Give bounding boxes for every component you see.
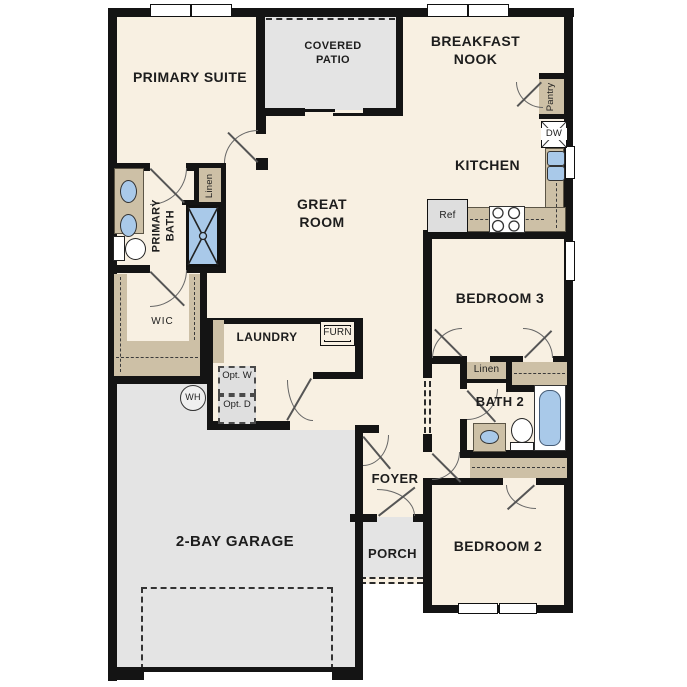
bath2-toilet-tank	[510, 442, 534, 451]
room-label-bath2: BATH 2	[470, 394, 530, 410]
room-label-wic: WIC	[140, 316, 185, 329]
kitchen-sink-basin2	[547, 166, 565, 181]
floor-plan: FURN Opt. W Opt. D WH PRIMARY SUITE COVE…	[0, 0, 687, 687]
garage-door-dash	[141, 587, 333, 670]
kitchen-sink-basin1	[547, 151, 565, 166]
opt-washer: Opt. W	[218, 366, 256, 395]
window-primary-2	[191, 4, 232, 17]
wall-patio-left	[256, 12, 265, 115]
label-linen-hall: Linen	[467, 364, 506, 377]
wall-garage-top	[108, 376, 207, 384]
room-label-kitchen: KITCHEN	[430, 157, 545, 175]
bedroom2-closet	[470, 458, 567, 478]
window-kitchen	[565, 146, 575, 179]
room-label-foyer: FOYER	[363, 471, 427, 487]
wall-patio-right	[396, 12, 403, 116]
room-label-laundry: LAUNDRY	[221, 330, 313, 345]
wall-hall-left	[423, 434, 432, 452]
primary-sink-1	[120, 180, 137, 203]
wall-bedroom2-top-b	[536, 478, 573, 485]
room-label-great-room: GREAT ROOM	[282, 196, 362, 231]
bath2-tub	[539, 390, 561, 446]
wall-shower-right	[220, 200, 226, 273]
window-nook-2	[468, 4, 509, 17]
wic-rod-bottom	[114, 341, 200, 376]
primary-sink-2	[120, 214, 137, 237]
hall-opening-dash1	[424, 381, 426, 433]
room-label-covered-patio: COVERED PATIO	[287, 40, 379, 68]
wall-right	[564, 8, 573, 613]
wall-bath-wic-a	[108, 265, 150, 273]
water-heater-label: WH	[180, 392, 206, 403]
wall-foyer-porch-a	[350, 514, 377, 522]
bedroom2-closet-dash	[472, 467, 565, 468]
wic-rod-dash-right	[194, 277, 195, 340]
room-label-porch: PORCH	[362, 546, 423, 562]
wall-patio-bottom-b	[363, 108, 403, 116]
bath2-sink	[480, 430, 499, 444]
room-label-primary-bath: PRIMARY BATH	[150, 189, 178, 263]
wall-laundry-right	[355, 318, 363, 378]
wall-linen2-bottom	[460, 379, 513, 383]
wall-wic-right	[200, 265, 207, 384]
label-linen-primary: Linen	[204, 168, 216, 204]
wall-foyer-left	[355, 466, 363, 517]
wall-foyer-stub	[355, 425, 379, 433]
window-bedroom2-1	[458, 603, 498, 614]
range-burners	[489, 206, 525, 233]
label-dw: DW	[541, 128, 567, 140]
primary-shower-x	[186, 205, 220, 267]
window-bedroom2-2	[499, 603, 537, 614]
hall-opening-dash2	[429, 381, 431, 433]
window-primary-1	[150, 4, 191, 17]
wall-bath2-left-a	[460, 378, 467, 389]
window-bedroom3	[565, 241, 575, 281]
wall-laundry-step	[313, 372, 363, 379]
room-label-bedroom3: BEDROOM 3	[435, 290, 565, 308]
bath2-toilet-bowl	[511, 418, 533, 443]
porch-edge-dash	[360, 577, 423, 579]
furnace-label: FURN	[321, 327, 354, 340]
room-label-garage: 2-BAY GARAGE	[172, 533, 298, 552]
kitchen-counter-dash-v	[556, 183, 557, 228]
room-label-bedroom2: BEDROOM 2	[433, 538, 563, 556]
primary-toilet-bowl	[125, 238, 146, 260]
wall-bedroom2-bottom	[423, 605, 573, 613]
label-ref: Ref	[430, 210, 465, 223]
porch-edge-dash2	[360, 582, 423, 584]
primary-toilet-tank	[113, 236, 125, 261]
wic-rod-dash-bottom	[116, 357, 198, 358]
room-label-primary-suite: PRIMARY SUITE	[130, 69, 250, 87]
label-pantry: Pantry	[545, 77, 557, 117]
exterior-cutout	[363, 584, 423, 612]
patio-roof-dash2	[266, 18, 395, 20]
wall-bedroom2-left	[423, 480, 432, 610]
opt-dryer: Opt. D	[218, 395, 256, 424]
patio-slider-panel2	[333, 113, 363, 116]
bedroom3-closet-dash	[514, 373, 565, 374]
patio-slider-panel1	[305, 109, 335, 112]
window-nook-1	[427, 4, 468, 17]
room-label-breakfast-nook: BREAKFAST NOOK	[413, 33, 538, 68]
garage-door-opening	[144, 672, 332, 680]
